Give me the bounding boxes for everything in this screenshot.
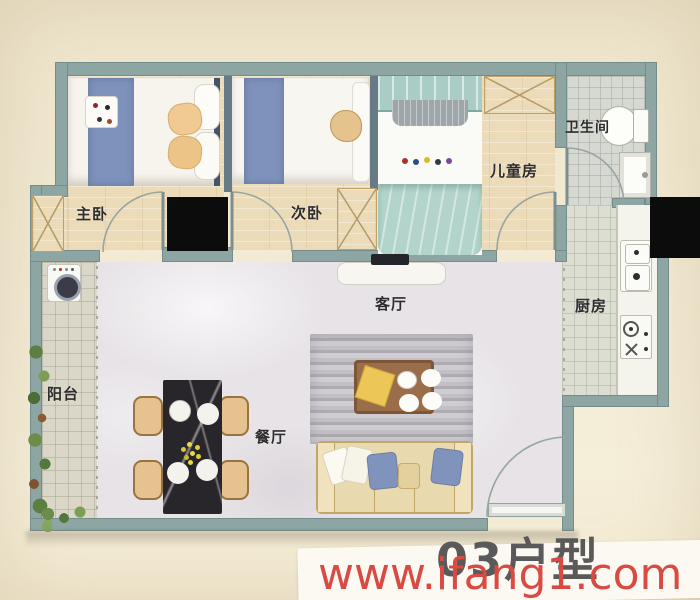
washing-machine-knobs [53,268,56,271]
sink-drain-dots [634,250,639,255]
dining-plates [169,400,191,422]
wall-divider-master-second [224,76,232,192]
entry-door-leaf [488,503,566,517]
sofa-pillow-blue-1 [366,452,400,491]
kitchen-sink [620,240,652,292]
wall-left-bedroom [55,62,68,197]
wall-divider-second-kids [370,76,378,190]
master-wardrobe [32,195,64,252]
balcony-plants-corner [38,500,94,530]
dining-chair-top-right [219,396,249,436]
tray-item-dot [93,103,98,108]
kids-bed [378,76,482,255]
tv-stand [337,262,446,285]
kids-wardrobe [484,76,555,114]
dining-chair-bottom-right [219,460,249,500]
bedside-stool [330,110,362,142]
kitchen-label: 厨房 [575,295,607,316]
sofa [316,441,473,514]
notepad [355,365,396,407]
toilet-tank [633,109,649,143]
watermark-url: www.ifang1.com [318,549,682,600]
floorplan-photo: 主卧 次卧 儿童房 卫生间 厨房 客厅 餐厅 阳台 03户型 www.ifang… [0,0,700,600]
sink-faucet [642,172,648,178]
wall-bottom [30,518,488,531]
master-bed-tray [85,96,118,128]
dining-chair-top-left [133,396,163,436]
sink-basin-large [625,265,650,291]
tv [371,254,409,265]
dining-chair-bottom-left [133,460,163,500]
kids-bed-toys [402,158,408,164]
living-room-label: 客厅 [375,293,407,314]
redaction-box-right [650,197,700,258]
second-wardrobe [337,188,377,250]
sofa-pillow-blue-2 [430,447,464,486]
kids-bed-canopy [392,100,468,126]
master-bed-blue-runner [88,78,134,186]
bathroom-label: 卫生间 [565,117,610,137]
redaction-box-left [167,197,228,251]
table-flowers [187,442,192,447]
dining-table [163,380,222,514]
stove [620,315,652,359]
second-bed-blue-runner [244,78,284,184]
kids-room-label: 儿童房 [490,160,538,181]
washing-machine [47,264,81,302]
kids-bed-blanket [378,184,482,255]
washing-machine-drum [54,274,81,301]
balcony-label: 阳台 [47,383,79,404]
master-bedroom-label: 主卧 [76,203,108,224]
dining-room-label: 餐厅 [255,426,287,447]
second-bedroom-label: 次卧 [291,202,323,223]
coffee-table [354,360,434,414]
wall-bedband-d [555,250,567,262]
wall-kitchen-bottom [562,395,669,407]
wall-kitchen-right [657,240,669,407]
cups [397,371,417,389]
bathroom-sink [619,152,651,198]
sofa-pillow-tan [398,463,420,489]
